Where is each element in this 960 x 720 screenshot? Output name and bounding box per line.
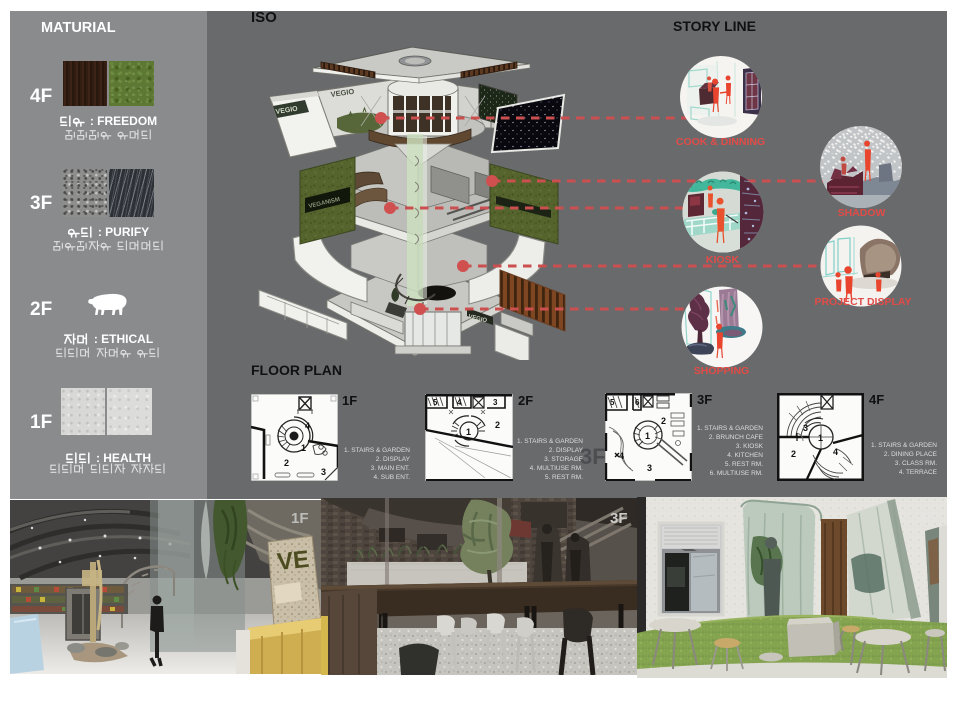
svg-text:4: 4 [619, 451, 624, 461]
svg-text:4: 4 [833, 447, 838, 457]
svg-text:1: 1 [645, 431, 650, 441]
svg-text:2: 2 [495, 420, 500, 430]
svg-text:3: 3 [321, 467, 326, 477]
svg-text:5: 5 [433, 398, 438, 407]
svg-text:4: 4 [457, 398, 462, 407]
svg-text:3: 3 [493, 398, 498, 407]
svg-text:2: 2 [791, 449, 796, 459]
svg-text:1: 1 [301, 443, 306, 453]
svg-text:3: 3 [803, 423, 808, 433]
svg-text:1: 1 [466, 427, 471, 437]
svg-text:3: 3 [647, 463, 652, 473]
svg-text:1: 1 [818, 433, 823, 443]
svg-text:2: 2 [284, 458, 289, 468]
svg-text:4: 4 [305, 421, 310, 431]
svg-text:2: 2 [661, 416, 666, 426]
svg-text:5: 5 [610, 398, 615, 407]
svg-text:VE: VE [276, 546, 311, 576]
svg-text:6: 6 [635, 398, 640, 407]
